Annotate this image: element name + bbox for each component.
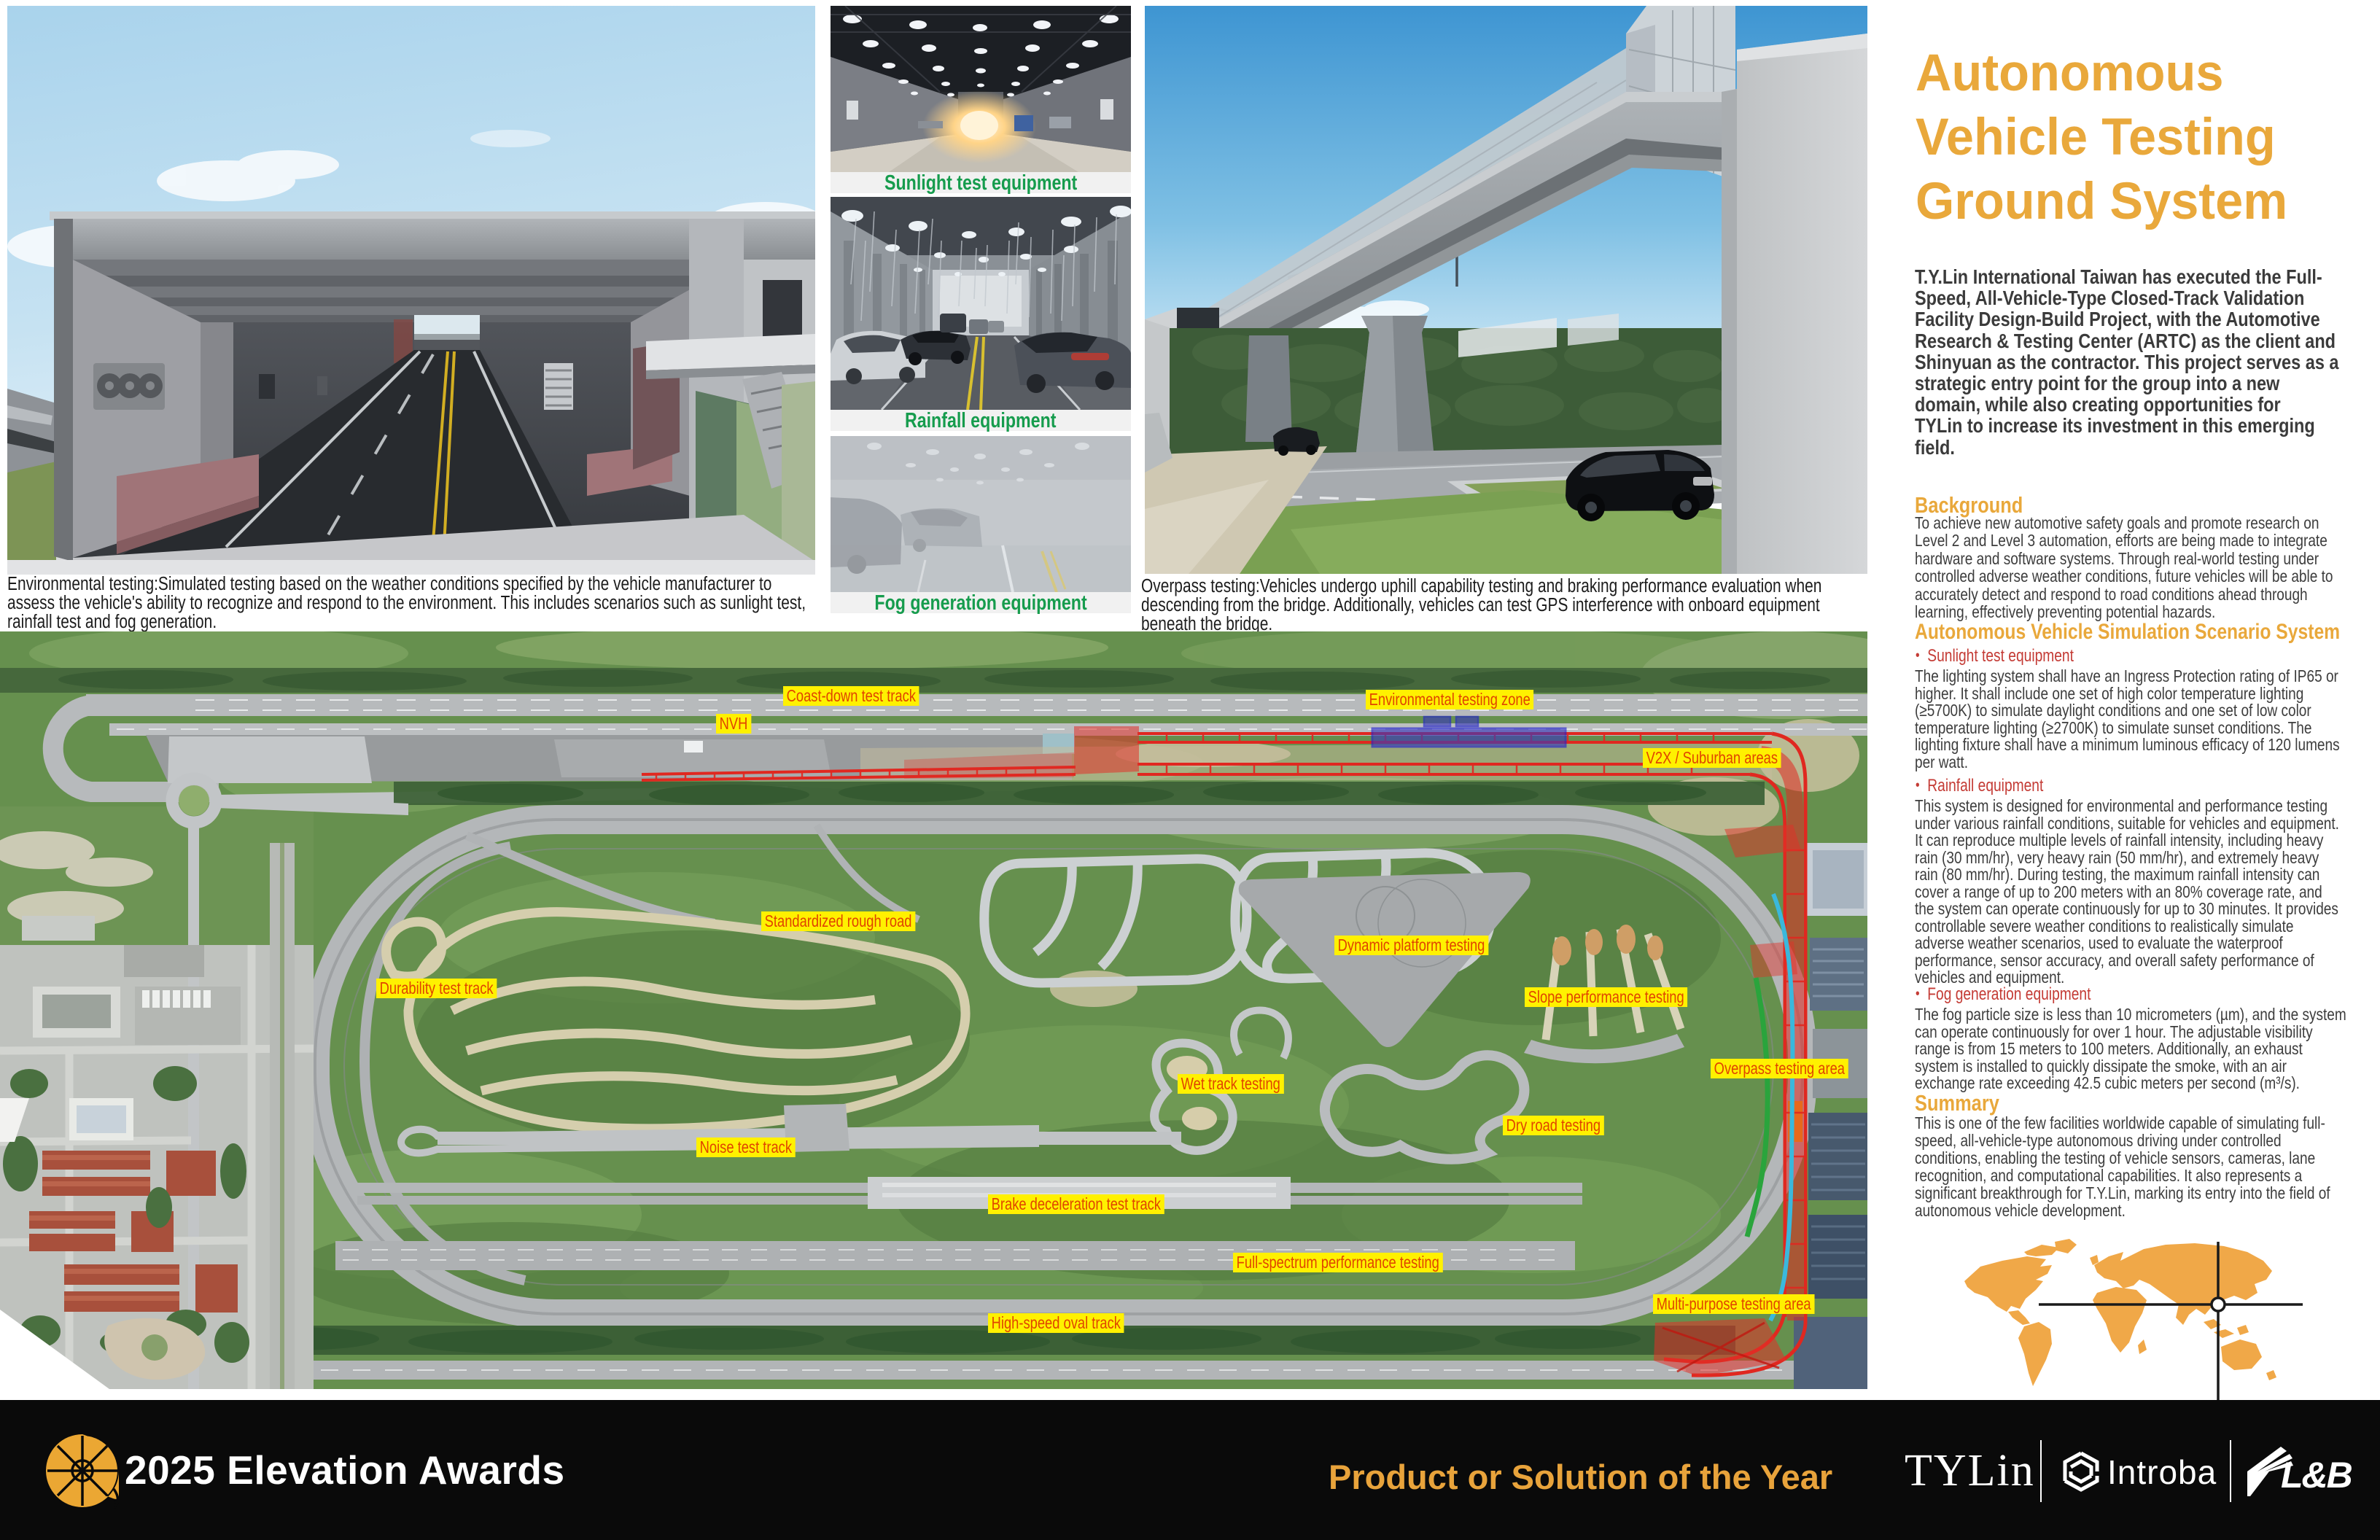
svg-text:L&B: L&B [2281, 1455, 2352, 1496]
